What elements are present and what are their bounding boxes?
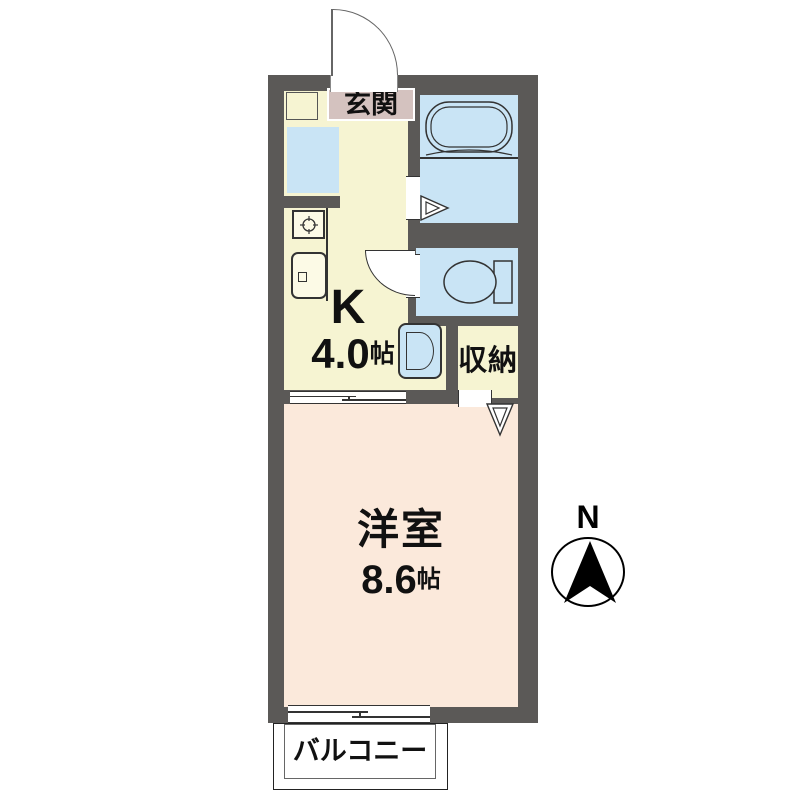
sliding-door-icon — [290, 391, 406, 404]
balcony-inner: バルコニー — [284, 724, 436, 779]
sliding-door-panel — [290, 396, 356, 398]
entrance-door-arc-icon — [333, 9, 398, 75]
window-sash — [352, 716, 430, 718]
refrigerator-space — [287, 127, 339, 193]
room-western-floor — [284, 404, 518, 707]
kitchen-area-unit: 帖 — [370, 342, 395, 367]
wall-stub — [284, 196, 340, 208]
western-room-label: 洋室 — [284, 506, 518, 554]
floor-plan-canvas: 収納 玄関 K 4.0帖 — [0, 0, 800, 800]
western-room-size-label: 8.6帖 — [284, 558, 518, 602]
kitchen-area-value: 4.0 — [311, 333, 369, 375]
washroom-door-opening — [406, 176, 420, 220]
kitchen-size-label: 4.0帖 — [290, 330, 416, 378]
sliding-window-icon — [288, 705, 430, 723]
compass-north-icon — [551, 537, 625, 607]
western-room-area-value: 8.6 — [361, 560, 417, 600]
bathtub-apron-line — [424, 142, 514, 158]
stove-icon — [292, 210, 325, 239]
window-sash — [288, 711, 368, 713]
sliding-door-joint — [348, 396, 350, 401]
folding-door-icon — [420, 195, 450, 221]
sink-drain — [298, 272, 307, 282]
western-room-area-unit: 帖 — [417, 568, 441, 592]
window-joint — [359, 711, 361, 717]
shoe-cabinet — [286, 92, 318, 120]
genkan-floor: 玄関 — [327, 88, 415, 121]
compass-north-label: N — [566, 500, 610, 534]
closet-folding-door-icon — [486, 403, 514, 437]
kitchen-code-label: K — [320, 282, 376, 334]
genkan-label: 玄関 — [344, 91, 398, 118]
storage-label: 収納 — [452, 334, 524, 388]
entrance-opening — [330, 75, 398, 92]
toilet-icon — [438, 254, 516, 310]
sliding-door-panel — [342, 399, 406, 401]
balcony-label: バルコニー — [293, 738, 427, 765]
